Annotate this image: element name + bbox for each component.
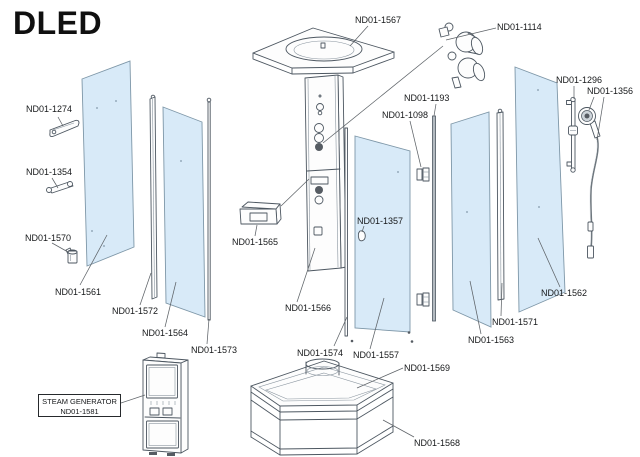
- part-label-1557: ND01-1557: [353, 350, 399, 360]
- hinge-top-drawing: [417, 168, 429, 181]
- hand-shower-drawing: [579, 108, 601, 259]
- diagram-drawing: [0, 0, 640, 457]
- door-seal-profile-drawing: [345, 128, 348, 336]
- control-column-drawing: [305, 75, 346, 271]
- part-label-1566: ND01-1566: [285, 303, 331, 313]
- wall-profile-strip-drawing: [150, 95, 157, 299]
- part-label-1573: ND01-1573: [191, 345, 237, 355]
- part-label-1357: ND01-1357: [357, 216, 403, 226]
- mixer-valve-drawing: [439, 23, 487, 88]
- part-label-1567: ND01-1567: [355, 15, 401, 25]
- shower-rail-drawing: [567, 97, 578, 172]
- part-label-1114: ND01-1114: [497, 22, 542, 32]
- wall-bracket-drawing: [50, 120, 79, 136]
- glass-panel-right-drawing: [515, 67, 565, 312]
- part-label-1354: ND01-1354: [26, 167, 72, 177]
- part-label-1570: ND01-1570: [25, 233, 71, 243]
- part-label-1564: ND01-1564: [142, 328, 188, 338]
- support-bar-drawing: [207, 98, 211, 320]
- steam-generator-drawing: [143, 353, 188, 456]
- roof-panel-drawing: [253, 28, 394, 74]
- fixing-screws-drawing: [351, 331, 414, 343]
- part-label-1563: ND01-1563: [468, 335, 514, 345]
- part-label-1356: ND01-1356: [587, 86, 633, 96]
- part-label-1568: ND01-1568: [414, 438, 460, 448]
- exploded-diagram-page: DLED ND01-1567 ND01-1114 ND01-1274 ND01-…: [0, 0, 640, 457]
- part-label-1274: ND01-1274: [26, 104, 72, 114]
- part-label-1571: ND01-1571: [492, 317, 538, 327]
- pivot-part-drawing: [66, 248, 77, 263]
- part-label-1296: ND01-1296: [556, 75, 602, 85]
- door-handle-drawing: [358, 231, 365, 241]
- part-label-1572: ND01-1572: [112, 306, 158, 316]
- shelf-box-drawing: [240, 202, 281, 224]
- steam-generator-callout: STEAM GENERATOR ND01-1581: [38, 394, 121, 417]
- wall-profile-strip-right-drawing: [497, 109, 504, 300]
- pivot-rod-drawing: [433, 116, 436, 321]
- part-label-1193: ND01-1193: [404, 93, 449, 103]
- steam-generator-callout-line1: STEAM GENERATOR: [39, 397, 120, 407]
- glass-panel-left-drawing: [82, 61, 134, 266]
- part-label-1565: ND01-1565: [232, 237, 278, 247]
- handle-bar-drawing: [47, 182, 74, 194]
- part-label-1561: ND01-1561: [55, 287, 101, 297]
- hinge-bottom-drawing: [417, 293, 429, 306]
- part-label-1569: ND01-1569: [404, 363, 450, 373]
- page-title: DLED: [13, 5, 102, 42]
- sliding-door-right-drawing: [451, 112, 491, 327]
- steam-generator-callout-line2: ND01-1581: [39, 407, 120, 417]
- part-label-1098: ND01-1098: [382, 110, 428, 120]
- glass-panel-left-front-drawing: [163, 107, 205, 317]
- part-label-1574: ND01-1574: [297, 348, 343, 358]
- shower-tray-drawing: [251, 359, 393, 455]
- part-label-1562: ND01-1562: [541, 288, 587, 298]
